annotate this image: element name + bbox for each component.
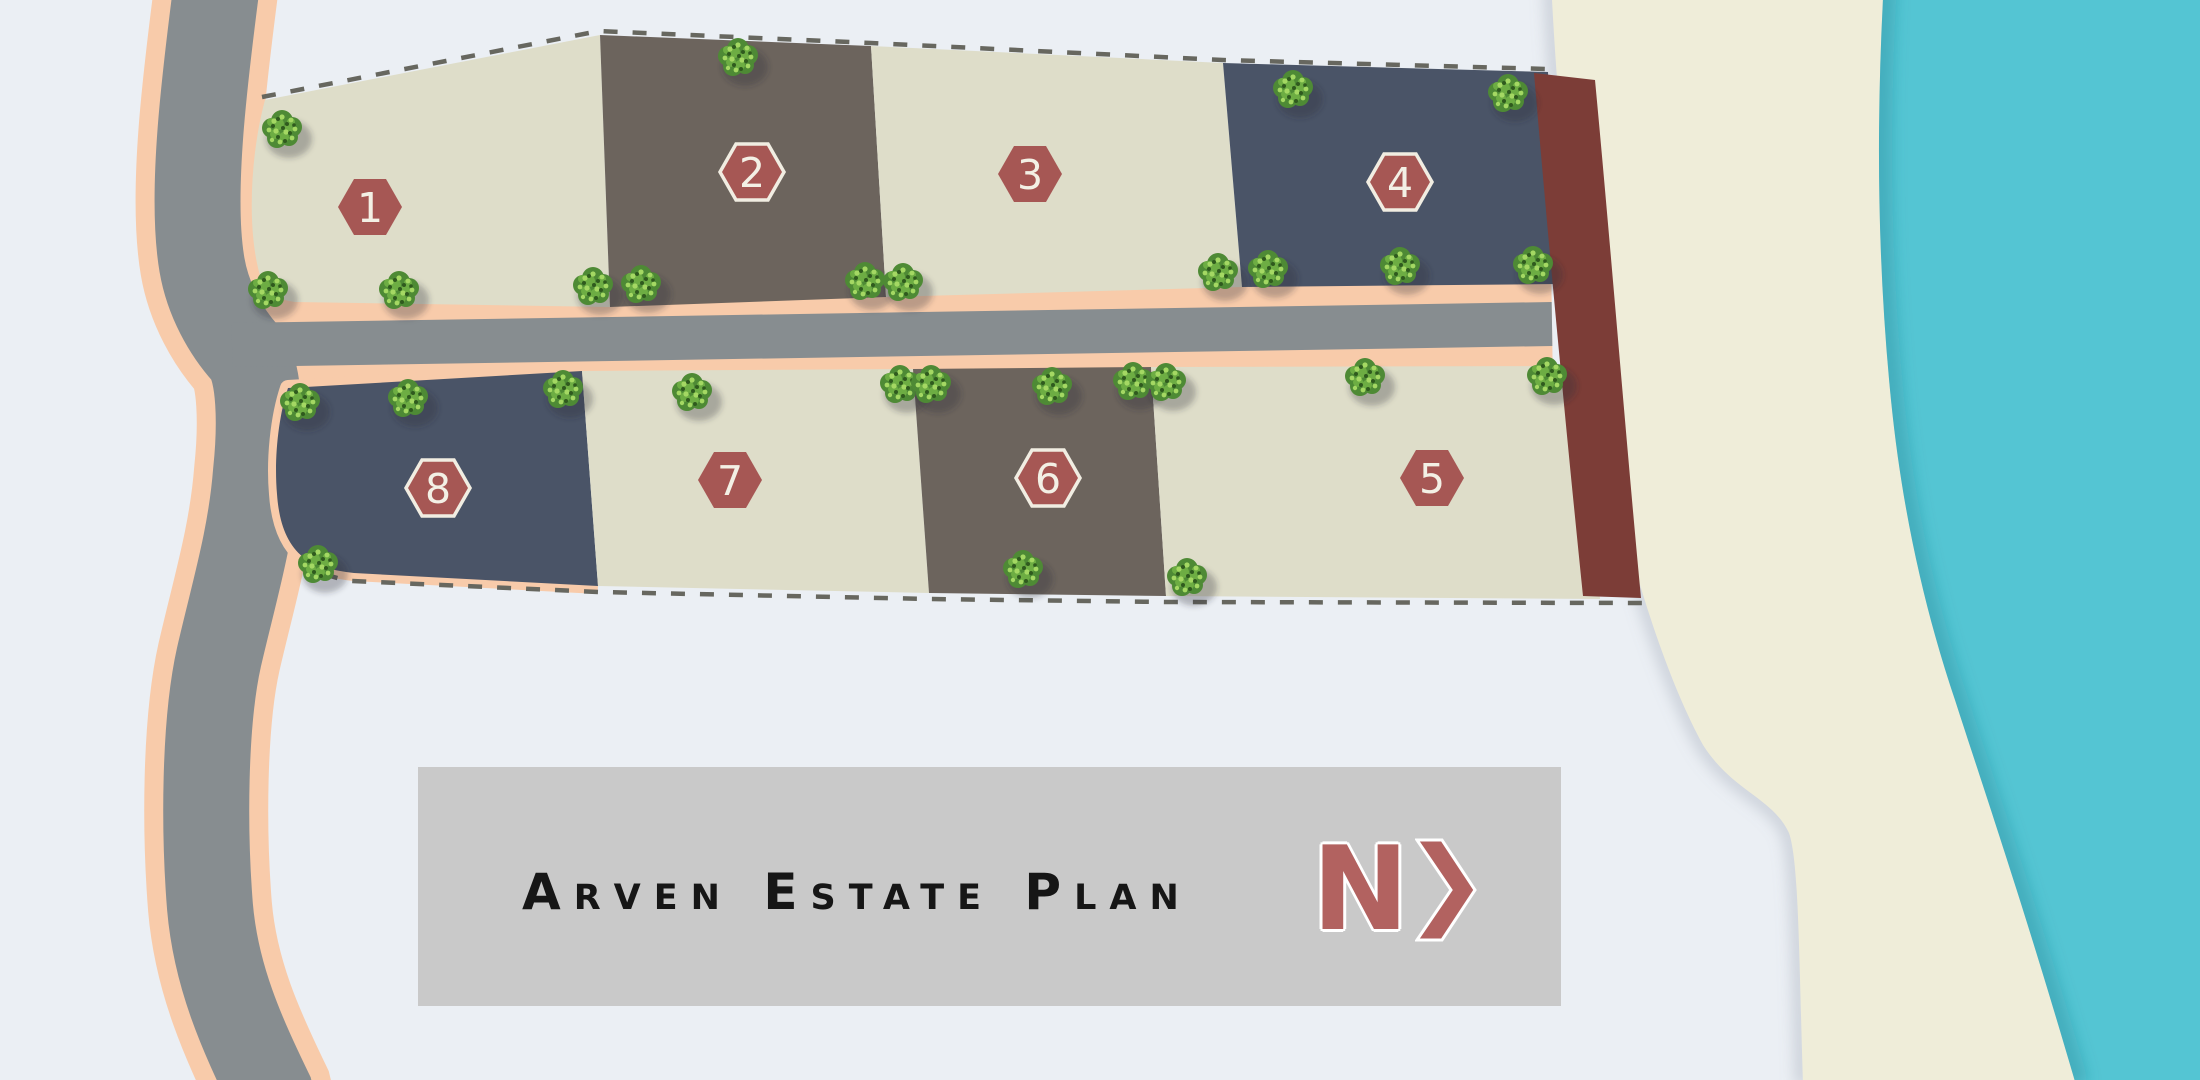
lot-number-6: 6 (1035, 455, 1061, 503)
lot-badge-6: 6 (1016, 450, 1080, 506)
lot-badge-8: 8 (406, 460, 470, 516)
lot-number-5: 5 (1419, 455, 1445, 503)
internal-street (232, 324, 1552, 345)
lot-badge-2: 2 (720, 144, 784, 200)
north-indicator: N (1312, 826, 1477, 948)
estate-plan-page: 1 2 3 4 5 6 7 (0, 0, 2200, 1080)
lot-number-4: 4 (1387, 159, 1413, 207)
north-label: N (1312, 832, 1409, 948)
plan-title: Arven Estate Plan (522, 853, 1192, 921)
north-chevron-icon (1415, 834, 1477, 946)
lot-number-7: 7 (717, 457, 743, 505)
lot-badge-4: 4 (1368, 154, 1432, 210)
lot-number-2: 2 (739, 149, 765, 197)
lot-number-8: 8 (425, 465, 451, 513)
title-card: Arven Estate Plan N (418, 767, 1561, 1006)
lot-number-1: 1 (357, 184, 383, 232)
lot-number-3: 3 (1017, 151, 1043, 199)
